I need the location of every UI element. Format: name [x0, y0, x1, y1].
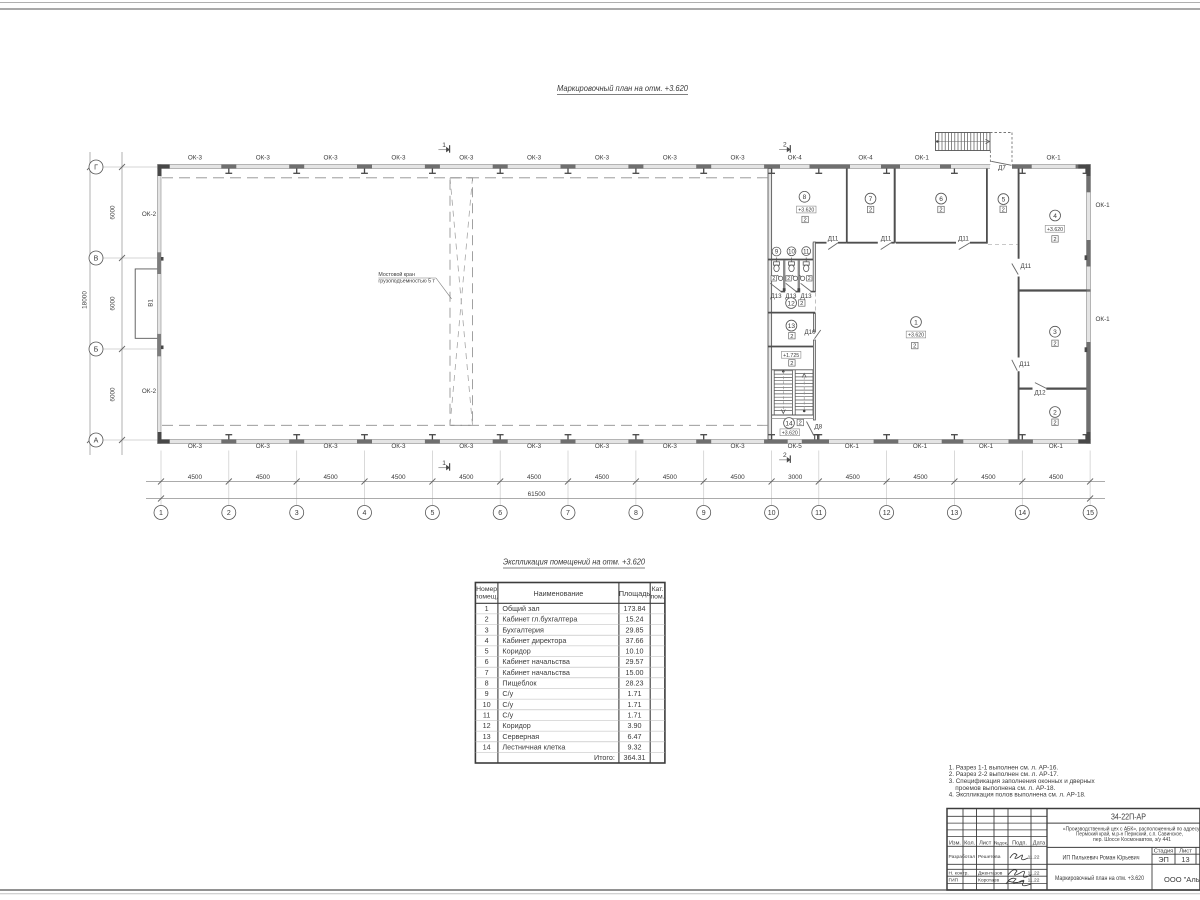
svg-text:2: 2: [803, 218, 806, 224]
svg-text:4500: 4500: [323, 474, 338, 481]
svg-text:61500: 61500: [528, 491, 546, 498]
svg-text:ОК-1: ОК-1: [1047, 155, 1062, 162]
svg-text:2: 2: [939, 208, 942, 214]
svg-text:2: 2: [790, 334, 793, 340]
svg-text:ОК-4: ОК-4: [858, 155, 873, 162]
svg-text:6000: 6000: [110, 205, 117, 220]
svg-text:14: 14: [785, 420, 793, 427]
svg-text:пом.: пом.: [650, 593, 664, 600]
svg-text:2: 2: [799, 421, 802, 427]
svg-text:Кабинет гл.бухгалтера: Кабинет гл.бухгалтера: [502, 615, 577, 624]
svg-text:3000: 3000: [788, 474, 803, 481]
svg-text:2: 2: [869, 208, 872, 214]
svg-text:ОК-1: ОК-1: [1096, 316, 1111, 323]
svg-text:6000: 6000: [110, 296, 117, 311]
svg-text:7: 7: [869, 196, 873, 203]
svg-text:10.10: 10.10: [626, 647, 644, 656]
svg-text:4500: 4500: [913, 474, 928, 481]
svg-text:ОК-3: ОК-3: [731, 443, 746, 450]
svg-text:7: 7: [566, 510, 570, 517]
svg-text:10: 10: [483, 700, 491, 709]
svg-text:34-22П-АР: 34-22П-АР: [1111, 812, 1146, 821]
svg-text:В1: В1: [148, 299, 155, 307]
svg-text:4500: 4500: [663, 474, 678, 481]
svg-text:6000: 6000: [110, 387, 117, 402]
svg-text:Лист: Лист: [1179, 849, 1192, 855]
svg-text:Маркировочный план на отм. +3.: Маркировочный план на отм. +3.620: [1055, 875, 1145, 882]
svg-text:28.23: 28.23: [626, 679, 644, 688]
svg-text:29.85: 29.85: [626, 625, 644, 634]
svg-text:4500: 4500: [846, 474, 861, 481]
svg-text:Кат.: Кат.: [652, 586, 664, 593]
svg-text:4500: 4500: [595, 474, 610, 481]
svg-text:ОК-3: ОК-3: [595, 443, 610, 450]
svg-text:1: 1: [485, 604, 489, 613]
svg-text:1: 1: [442, 142, 446, 149]
svg-text:4500: 4500: [730, 474, 745, 481]
svg-text:Д11: Д11: [1021, 263, 1032, 270]
svg-text:Д12: Д12: [1034, 390, 1046, 397]
svg-text:ОК-1: ОК-1: [979, 443, 994, 450]
svg-text:ОК-3: ОК-3: [527, 443, 542, 450]
svg-text:12: 12: [787, 300, 795, 307]
svg-text:ИП Пилькевич Роман Юрьевич: ИП Пилькевич Роман Юрьевич: [1063, 855, 1140, 861]
svg-text:Дата: Дата: [1033, 840, 1046, 846]
svg-text:№док.: №док.: [994, 840, 1008, 846]
svg-text:13: 13: [1181, 855, 1189, 864]
svg-text:ОК-3: ОК-3: [459, 443, 474, 450]
svg-text:Стадия: Стадия: [1154, 849, 1174, 855]
svg-text:ОК-2: ОК-2: [142, 211, 157, 218]
svg-text:4: 4: [1053, 213, 1057, 220]
svg-text:ОК-3: ОК-3: [663, 443, 678, 450]
svg-text:ОК-1: ОК-1: [913, 443, 928, 450]
svg-text:8: 8: [485, 679, 489, 688]
svg-text:4500: 4500: [188, 474, 203, 481]
svg-text:Мостовой кран: Мостовой кран: [378, 271, 415, 278]
svg-text:С/у: С/у: [502, 711, 513, 720]
svg-text:364.31: 364.31: [624, 753, 646, 762]
svg-text:13: 13: [788, 323, 796, 330]
svg-text:4500: 4500: [1049, 474, 1064, 481]
svg-text:6: 6: [498, 510, 502, 517]
svg-text:Джентазов: Джентазов: [978, 870, 1003, 876]
svg-text:12: 12: [883, 510, 891, 517]
svg-text:ОК-3: ОК-3: [391, 155, 406, 162]
svg-text:3.90: 3.90: [628, 721, 642, 730]
svg-text:ОК-3: ОК-3: [459, 155, 474, 162]
svg-text:3: 3: [1053, 329, 1057, 336]
svg-text:Коротаев: Коротаев: [978, 877, 1000, 883]
svg-text:ОК-3: ОК-3: [188, 155, 203, 162]
svg-text:2: 2: [1002, 207, 1005, 213]
svg-text:Общий зал: Общий зал: [502, 604, 539, 613]
svg-text:В: В: [94, 256, 99, 263]
svg-text:ОК-3: ОК-3: [391, 443, 406, 450]
svg-text:ЭП: ЭП: [1158, 855, 1169, 864]
svg-text:5: 5: [485, 647, 489, 656]
svg-text:Кабинет начальства: Кабинет начальства: [502, 668, 569, 677]
svg-text:Б: Б: [94, 347, 99, 354]
svg-text:2: 2: [1053, 237, 1056, 243]
svg-text:+3.620: +3.620: [908, 333, 924, 339]
svg-text:9.32: 9.32: [628, 742, 642, 751]
svg-text:5: 5: [1002, 197, 1006, 204]
svg-text:1.71: 1.71: [628, 689, 642, 698]
svg-text:1: 1: [914, 319, 918, 326]
svg-text:15: 15: [1086, 510, 1094, 517]
svg-text:11: 11: [815, 510, 822, 517]
svg-text:С/у: С/у: [502, 689, 513, 698]
svg-text:Площадь: Площадь: [619, 589, 651, 598]
svg-text:Кабинет директора: Кабинет директора: [502, 636, 566, 645]
svg-text:2: 2: [1053, 341, 1056, 347]
svg-text:1.71: 1.71: [628, 700, 642, 709]
svg-text:2: 2: [1053, 420, 1056, 426]
svg-text:Изм.: Изм.: [949, 840, 961, 846]
svg-text:10: 10: [788, 250, 795, 256]
svg-text:Разработал: Разработал: [949, 854, 976, 860]
svg-text:Экспликация помещений на отм.: Экспликация помещений на отм. +3.620: [503, 557, 645, 567]
svg-text:6.47: 6.47: [628, 732, 642, 741]
svg-text:37.66: 37.66: [626, 636, 644, 645]
svg-text:5: 5: [430, 510, 434, 517]
svg-text:3: 3: [295, 510, 299, 517]
svg-text:29.57: 29.57: [626, 657, 644, 666]
svg-text:6: 6: [939, 196, 943, 203]
svg-text:+1.725: +1.725: [783, 353, 799, 359]
svg-text:А: А: [94, 438, 99, 445]
svg-text:Решетова: Решетова: [978, 854, 1001, 860]
svg-text:Коридор: Коридор: [502, 721, 530, 730]
svg-text:1: 1: [159, 510, 163, 517]
svg-text:9: 9: [485, 689, 489, 698]
svg-text:11: 11: [803, 249, 810, 255]
svg-text:11: 11: [483, 711, 490, 720]
svg-text:4: 4: [363, 510, 367, 517]
svg-text:2: 2: [787, 276, 790, 282]
svg-text:1: 1: [442, 460, 446, 467]
svg-text:Кабинет начальства: Кабинет начальства: [502, 657, 569, 666]
svg-text:ОК-5: ОК-5: [788, 443, 803, 450]
svg-text:Подп.: Подп.: [1012, 840, 1027, 846]
svg-text:Д8: Д8: [815, 423, 823, 430]
svg-text:ОК-2: ОК-2: [142, 388, 157, 395]
svg-text:15.24: 15.24: [626, 615, 644, 624]
svg-text:9: 9: [702, 510, 706, 517]
svg-text:Серверная: Серверная: [502, 732, 539, 741]
svg-text:Лестничная клетка: Лестничная клетка: [502, 742, 565, 751]
svg-text:8: 8: [634, 510, 638, 517]
svg-text:18000: 18000: [82, 291, 89, 309]
svg-text:ОК-3: ОК-3: [188, 443, 203, 450]
svg-text:6: 6: [485, 657, 489, 666]
svg-text:Лист: Лист: [979, 840, 992, 846]
svg-text:4500: 4500: [981, 474, 996, 481]
svg-text:10: 10: [768, 510, 776, 517]
svg-text:ОК-3: ОК-3: [256, 443, 271, 450]
svg-text:2: 2: [783, 142, 787, 149]
svg-text:ОК-1: ОК-1: [1049, 443, 1064, 450]
svg-text:ОК-3: ОК-3: [527, 155, 542, 162]
svg-text:12: 12: [483, 721, 491, 730]
svg-text:ООО "Альфа: ООО "Альфа: [1164, 875, 1200, 884]
svg-text:ОК-3: ОК-3: [731, 155, 746, 162]
svg-text:ОК-1: ОК-1: [1096, 202, 1111, 209]
svg-text:2: 2: [227, 510, 231, 517]
svg-text:ОК-3: ОК-3: [595, 155, 610, 162]
svg-text:Д10: Д10: [804, 329, 816, 336]
svg-text:11.22: 11.22: [1028, 854, 1040, 860]
svg-text:173.84: 173.84: [624, 604, 646, 613]
svg-text:ОК-3: ОК-3: [324, 155, 339, 162]
svg-text:+3.620: +3.620: [798, 208, 814, 214]
svg-text:3: 3: [485, 625, 489, 634]
svg-text:2: 2: [913, 344, 916, 350]
svg-text:ОК-3: ОК-3: [324, 443, 339, 450]
svg-text:пер. Шоссе Космонавтов, з/у 44: пер. Шоссе Космонавтов, з/у 441: [1093, 837, 1171, 843]
svg-text:13: 13: [951, 510, 959, 517]
svg-text:Номер: Номер: [476, 586, 497, 593]
svg-text:Пищеблок: Пищеблок: [502, 679, 537, 688]
svg-text:ОК-3: ОК-3: [663, 155, 678, 162]
svg-text:4500: 4500: [459, 474, 474, 481]
svg-text:13: 13: [483, 732, 491, 741]
svg-text:ОК-3: ОК-3: [256, 155, 271, 162]
svg-text:Итого:: Итого:: [594, 753, 615, 762]
svg-text:грузоподъемностью 5 т: грузоподъемностью 5 т: [378, 279, 435, 285]
svg-text:15.00: 15.00: [626, 668, 644, 677]
svg-text:2: 2: [808, 276, 811, 282]
svg-text:Кол.: Кол.: [964, 840, 976, 846]
svg-text:2: 2: [783, 452, 787, 459]
svg-text:ОК-1: ОК-1: [845, 443, 860, 450]
svg-text:+3.620: +3.620: [1047, 227, 1063, 233]
svg-text:4500: 4500: [256, 474, 271, 481]
svg-text:14: 14: [483, 742, 491, 751]
svg-text:+3.620: +3.620: [782, 430, 798, 436]
svg-text:7: 7: [485, 668, 489, 677]
svg-text:14: 14: [1018, 510, 1026, 517]
svg-text:4500: 4500: [527, 474, 542, 481]
svg-text:ОК-4: ОК-4: [788, 155, 803, 162]
svg-text:11.22: 11.22: [1028, 878, 1040, 884]
svg-text:Маркировочный план на отм. +3: Маркировочный план на отм. +3.620: [557, 83, 688, 93]
svg-text:Г: Г: [94, 165, 98, 172]
svg-text:Д11: Д11: [881, 236, 892, 243]
svg-text:8: 8: [803, 194, 807, 201]
svg-text:ГИП: ГИП: [949, 877, 959, 883]
svg-text:С/у: С/у: [502, 700, 513, 709]
svg-text:Д11: Д11: [1019, 361, 1030, 368]
svg-text:Д11: Д11: [958, 236, 969, 243]
svg-text:1.71: 1.71: [628, 711, 642, 720]
svg-text:2: 2: [772, 276, 775, 282]
svg-text:ОК-1: ОК-1: [915, 155, 930, 162]
svg-text:Д13: Д13: [801, 293, 813, 300]
svg-text:4500: 4500: [391, 474, 406, 481]
svg-text:Д7: Д7: [998, 164, 1006, 171]
svg-text:помещ.: помещ.: [475, 593, 499, 600]
svg-text:2: 2: [1053, 409, 1057, 416]
svg-text:2: 2: [485, 615, 489, 624]
svg-text:Н. контр.: Н. контр.: [949, 870, 969, 876]
svg-text:Коридор: Коридор: [502, 647, 530, 656]
svg-text:Д11: Д11: [828, 236, 839, 243]
svg-text:Бухгалтерия: Бухгалтерия: [502, 625, 544, 634]
svg-text:2: 2: [800, 301, 803, 307]
svg-text:4: 4: [485, 636, 489, 645]
svg-text:2: 2: [790, 361, 793, 367]
svg-text:Наименование: Наименование: [533, 589, 583, 598]
svg-text:Д13: Д13: [770, 293, 782, 300]
svg-text:4. Экспликация полов выполнена: 4. Экспликация полов выполнена см. л. АР…: [949, 792, 1086, 799]
